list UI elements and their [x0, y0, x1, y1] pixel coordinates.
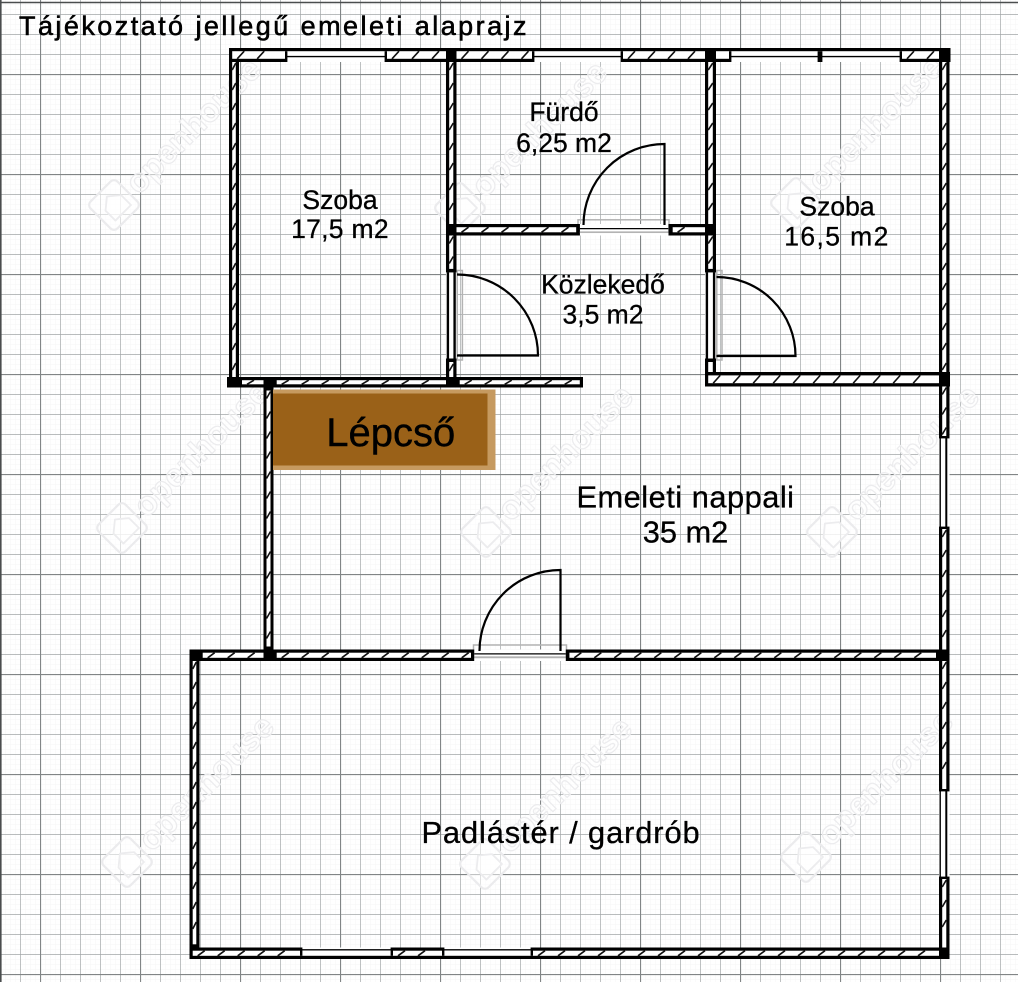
- svg-text:Közlekedő: Közlekedő: [541, 270, 665, 300]
- svg-text:Emeleti nappali: Emeleti nappali: [576, 480, 794, 515]
- svg-text:Fürdő: Fürdő: [529, 97, 598, 127]
- svg-text:17,5 m2: 17,5 m2: [291, 214, 389, 244]
- svg-text:Szoba: Szoba: [302, 185, 377, 215]
- svg-text:Tájékoztató jellegű emeleti al: Tájékoztató jellegű emeleti alaprajz: [19, 11, 529, 41]
- svg-text:6,25 m2: 6,25 m2: [516, 128, 612, 158]
- svg-text:Padlástér / gardrób: Padlástér / gardrób: [421, 815, 700, 850]
- svg-text:35 m2: 35 m2: [643, 514, 729, 549]
- svg-text:16,5 m2: 16,5 m2: [784, 221, 890, 251]
- svg-text:Lépcső: Lépcső: [326, 411, 455, 455]
- svg-text:Szoba: Szoba: [799, 192, 874, 222]
- svg-text:3,5 m2: 3,5 m2: [562, 300, 643, 330]
